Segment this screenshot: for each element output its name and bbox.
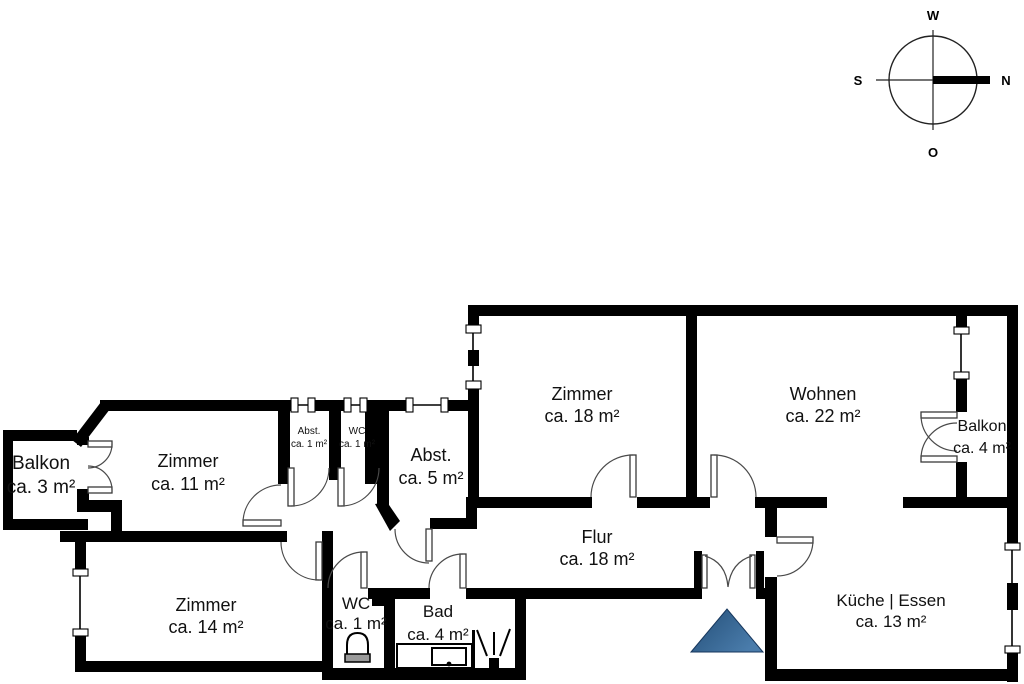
compass-label-east: O — [928, 145, 938, 160]
compass-label-south: S — [854, 73, 863, 88]
room-label-bad: Badca. 4 m² — [407, 600, 468, 646]
compass-label-west: W — [927, 8, 940, 23]
floor-plan-canvas: W N S O Balkonca. 3 m² Zimmerca. 11 m² A… — [0, 0, 1024, 684]
room-label-balkon-rechts: Balkonca. 4 m² — [953, 416, 1011, 460]
bathtub-icon — [397, 644, 472, 668]
room-label-wohnen: Wohnenca. 22 m² — [785, 383, 860, 427]
room-label-wc-oben: WCca. 1 m² — [339, 425, 375, 451]
room-label-flur: Flurca. 18 m² — [559, 526, 634, 570]
room-label-abst-1: Abst.ca. 1 m² — [291, 425, 327, 451]
room-label-zimmer-14: Zimmerca. 14 m² — [168, 594, 243, 638]
entrance-marker — [691, 609, 763, 652]
room-label-kueche: Küche | Essenca. 13 m² — [836, 590, 945, 632]
toilet-icon — [345, 633, 370, 662]
compass-rose: W N S O — [854, 8, 1011, 160]
shower-icon — [477, 629, 510, 668]
floor-plan: W N S O — [0, 0, 1024, 684]
compass-needle — [933, 76, 990, 84]
compass-label-north: N — [1001, 73, 1010, 88]
room-label-balkon-links: Balkonca. 3 m² — [7, 452, 76, 500]
room-label-abst-5: Abst.ca. 5 m² — [398, 444, 463, 490]
room-label-zimmer-18: Zimmerca. 18 m² — [544, 383, 619, 427]
room-label-wc-unten: WCca. 1 m² — [325, 594, 386, 634]
room-label-zimmer-11: Zimmerca. 11 m² — [151, 450, 225, 496]
